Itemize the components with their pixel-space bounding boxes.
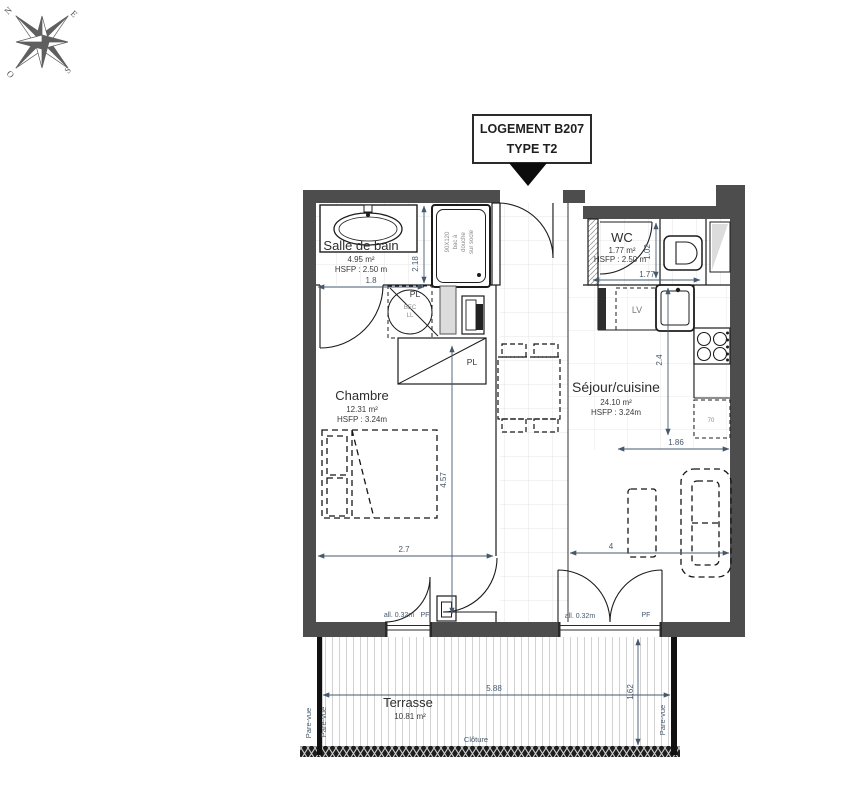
bathroom-area: 4.95 m² <box>347 255 374 264</box>
terrace-fence <box>300 746 680 757</box>
technical-duct <box>710 222 730 272</box>
bathroom-ceiling: HSFP : 2.50 m <box>335 265 388 274</box>
privacy-screen-right <box>671 637 677 755</box>
bedroom-area: 12.31 m² <box>346 405 378 414</box>
coffee-table <box>628 489 656 557</box>
pf-right-label: PF <box>642 612 651 619</box>
pillow <box>327 478 347 516</box>
shower-spec-line2: bac à <box>453 234 459 249</box>
sill-left-label: all. 0.32m <box>384 612 415 619</box>
entrance-arrow-icon <box>509 163 547 186</box>
dim-kitchen-depth: 2.4 <box>655 354 664 366</box>
sill-right-label: all. 0.32m <box>565 613 596 620</box>
bedroom-ceiling: HSFP : 3.24m <box>337 415 387 424</box>
dim-bedroom-width: 2.7 <box>398 545 410 554</box>
terrace-area <box>300 637 680 757</box>
fridge-label: 70 <box>708 418 715 424</box>
dim-wc-width: 1.77 <box>639 270 655 279</box>
lot-title-box: LOGEMENT B207 TYPE T2 <box>472 114 592 164</box>
bathroom-door <box>320 285 383 348</box>
privacy-screen-left-inner-label: Pare-vue <box>319 707 328 737</box>
dim-terrace-depth: 1.62 <box>626 684 635 700</box>
dim-bath-depth: 2.18 <box>411 256 420 272</box>
dishwasher-label: LV <box>632 305 642 315</box>
kitchen-end-panel <box>598 288 606 330</box>
closet-top-label: PL <box>410 289 421 299</box>
pf-left-label: PF <box>421 612 430 619</box>
living-furniture <box>628 469 731 577</box>
sliding-panel <box>440 286 456 334</box>
wc-area: 1.77 m² <box>608 246 635 255</box>
lot-number: LOGEMENT B207 <box>476 119 588 139</box>
terrace-area-label: 10.81 m² <box>394 712 426 721</box>
closet-main-label: PL <box>467 357 478 367</box>
terrace-name: Terrasse <box>383 695 433 710</box>
floor-plan-drawing: N E O S <box>0 0 865 800</box>
wc-name: WC <box>611 230 633 245</box>
dim-terrace-width: 5.88 <box>486 684 502 693</box>
cooktop <box>694 328 730 364</box>
fence-label: Clôture <box>464 735 488 744</box>
washer-label-line1: BEC <box>404 305 417 311</box>
dim-bath-width: 1.8 <box>365 276 377 285</box>
living-ceiling: HSFP : 3.24m <box>591 408 641 417</box>
shower-spec-line3: douche <box>461 231 467 251</box>
lot-type: TYPE T2 <box>476 139 588 159</box>
floor-plan-page: LOGEMENT B207 TYPE T2 <box>0 0 865 800</box>
privacy-screen-right-label: Pare-vue <box>658 705 667 735</box>
dim-wc-depth: 1.02 <box>643 244 652 260</box>
compass-west-label: O <box>5 68 17 80</box>
bedroom-name: Chambre <box>335 388 388 403</box>
toilet <box>664 236 702 270</box>
washer-niche <box>388 286 484 338</box>
wc-ceiling: HSFP : 2.50 m <box>594 255 647 264</box>
compass-south-label: S <box>62 65 73 76</box>
living-area: 24.10 m² <box>600 398 632 407</box>
compass-east-label: E <box>69 8 80 19</box>
dim-living-right: 1.86 <box>668 438 684 447</box>
privacy-screen-left-outer-label: Pare-vue <box>304 708 313 738</box>
dim-bedroom-depth: 4.57 <box>439 472 448 488</box>
bathroom-name: Salle de bain <box>323 238 398 253</box>
washer-label-line2: LL <box>407 313 414 319</box>
compass-north-label: N <box>2 4 14 16</box>
pillow <box>327 436 347 475</box>
shower-spec-line1: 90X120 <box>445 231 451 252</box>
shower-spec-line4: sur socle <box>469 229 475 254</box>
compass-rose: N E O S <box>2 4 80 80</box>
living-name: Séjour/cuisine <box>572 379 660 395</box>
bed <box>322 430 437 518</box>
dim-living-width: 4 <box>609 542 614 551</box>
